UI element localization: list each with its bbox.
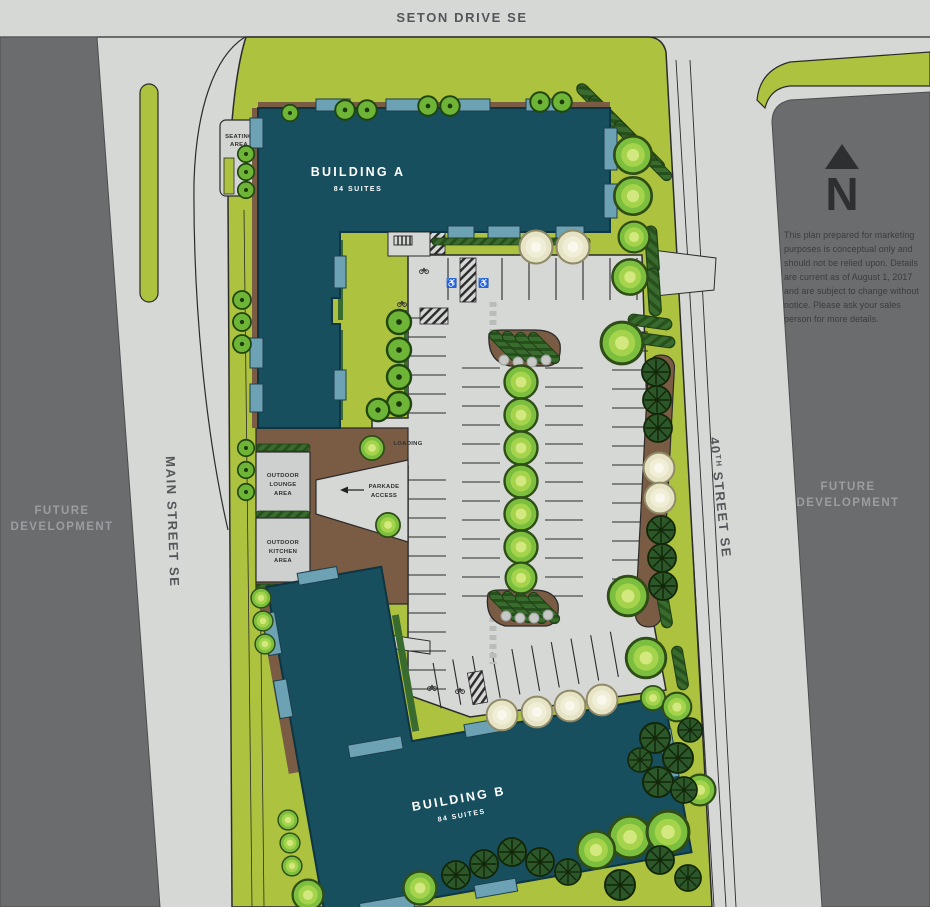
tree-icon <box>612 259 647 294</box>
shrub-icon <box>282 105 299 122</box>
tree-icon <box>293 880 324 907</box>
tree-icon <box>404 872 437 905</box>
tree-icon <box>626 638 666 678</box>
conifer-icon <box>646 846 674 874</box>
conifer-icon <box>605 870 635 900</box>
tree-icon <box>278 810 298 830</box>
building-a-suites: 84 SUITES <box>334 186 383 193</box>
seating-label-1: SEATING <box>225 134 253 140</box>
conifer-icon <box>644 414 672 442</box>
shrub-icon <box>233 335 251 353</box>
shrub-icon <box>418 96 438 116</box>
shrub-icon <box>233 291 251 309</box>
hedge-icon <box>256 511 310 518</box>
boulder-icon <box>501 611 511 621</box>
right-parcel-label-1: FUTURE <box>820 481 875 493</box>
accessible-parking-icon: ♿ <box>446 277 457 288</box>
east-driveway <box>652 250 716 296</box>
boulder-icon <box>543 610 553 620</box>
loading-label: LOADING <box>393 441 422 447</box>
disclaimer-line: This plan prepared for marketing <box>784 230 914 240</box>
building-a-name: BUILDING A <box>311 165 405 179</box>
lounge-label-2: LOUNGE <box>270 482 297 488</box>
disclaimer-line: person for more details. <box>784 314 879 324</box>
shrub-icon <box>387 392 411 416</box>
conifer-icon <box>555 859 581 885</box>
shrub-icon <box>233 313 251 331</box>
conifer-icon <box>643 386 671 414</box>
shrub-icon <box>387 338 411 362</box>
north-letter: N <box>825 168 858 220</box>
ornamental-tree-icon <box>555 691 586 722</box>
shrub-icon <box>238 146 255 163</box>
conifer-icon <box>675 865 701 891</box>
accessible-parking-icon: ♿ <box>478 277 489 288</box>
conifer-icon <box>643 767 673 797</box>
seating-planter <box>224 158 234 194</box>
shrub-icon <box>238 440 255 457</box>
left-parcel-label-1: FUTURE <box>34 505 89 517</box>
hedge-icon <box>256 444 310 451</box>
tree-icon <box>282 856 302 876</box>
tree-icon <box>360 436 384 460</box>
kitchen-label-3: AREA <box>274 558 292 564</box>
conifer-icon <box>663 743 693 773</box>
disclaimer-line: are current as of August 1, 2017 <box>784 272 912 282</box>
boulder-icon <box>529 613 539 623</box>
conifer-icon <box>647 516 675 544</box>
tree-icon <box>253 611 273 631</box>
street-median <box>140 84 158 302</box>
shrub-icon <box>387 365 411 389</box>
tree-icon <box>608 576 648 616</box>
conifer-icon <box>649 572 677 600</box>
lounge-label-1: OUTDOOR <box>267 473 300 479</box>
disclaimer-line: purposes is conceptual only and <box>784 244 913 254</box>
site-plan-svg: FUTURE DEVELOPMENT ♿ ♿ <box>0 0 930 907</box>
tree-icon <box>641 686 665 710</box>
lounge-label-3: AREA <box>274 491 292 497</box>
tree-icon <box>255 634 275 654</box>
shrub-icon <box>367 399 390 422</box>
tree-icon <box>505 366 538 399</box>
tree-icon <box>619 222 650 253</box>
site-plan: FUTURE DEVELOPMENT ♿ ♿ <box>0 0 930 907</box>
ornamental-tree-icon <box>587 685 618 716</box>
shrub-icon <box>238 182 255 199</box>
shrub-icon <box>357 100 377 120</box>
tree-icon <box>506 563 537 594</box>
boulder-icon <box>541 355 551 365</box>
conifer-icon <box>628 748 652 772</box>
right-parcel-label-2: DEVELOPMENT <box>797 497 900 509</box>
ornamental-tree-icon <box>522 697 553 728</box>
crosswalk-hatch-west <box>420 308 448 324</box>
conifer-icon <box>648 544 676 572</box>
tree-icon <box>663 693 692 722</box>
conifer-icon <box>678 718 702 742</box>
tree-icon <box>376 513 400 537</box>
conifer-icon <box>526 848 554 876</box>
tree-icon <box>280 833 300 853</box>
conifer-icon <box>642 358 670 386</box>
ornamental-tree-icon <box>645 483 676 514</box>
tree-icon <box>577 831 614 868</box>
disclaimer: This plan prepared for marketing purpose… <box>784 230 919 324</box>
shrub-icon <box>552 92 572 112</box>
disclaimer-line: should not be relied upon. Details <box>784 258 918 268</box>
tree-icon <box>505 399 538 432</box>
tree-icon <box>614 177 651 214</box>
kitchen-label-2: KITCHEN <box>269 549 297 555</box>
conifer-icon <box>498 838 526 866</box>
disclaimer-line: notice. Please ask your sales <box>784 300 901 310</box>
ornamental-tree-icon <box>557 231 590 264</box>
boulder-icon <box>527 357 537 367</box>
parkade-access-label-2: ACCESS <box>371 493 397 499</box>
shrub-icon <box>238 164 255 181</box>
tree-icon <box>647 811 689 853</box>
ornamental-tree-icon <box>520 231 553 264</box>
left-parcel-label-2: DEVELOPMENT <box>11 521 114 533</box>
tree-icon <box>614 136 651 173</box>
disclaimer-line: and are subject to change without <box>784 286 919 296</box>
shrub-icon <box>238 484 255 501</box>
tree-icon <box>601 322 643 364</box>
stairs-icon <box>394 236 412 245</box>
kitchen-label-1: OUTDOOR <box>267 540 300 546</box>
shrub-icon <box>335 100 355 120</box>
tree-icon <box>505 465 538 498</box>
ornamental-tree-icon <box>487 700 518 731</box>
boulder-icon <box>515 613 525 623</box>
conifer-icon <box>442 861 470 889</box>
tree-icon <box>505 498 538 531</box>
tree-icon <box>505 531 538 564</box>
parkade-access-label-1: PARKADE <box>369 484 400 490</box>
shrub-icon <box>238 462 255 479</box>
conifer-icon <box>671 777 697 803</box>
shrub-icon <box>387 310 411 334</box>
shrub-icon <box>530 92 550 112</box>
crosswalk-hatch-north <box>460 258 476 302</box>
tree-icon <box>505 432 538 465</box>
seton-drive-label: SETON DRIVE SE <box>396 10 527 25</box>
boulder-icon <box>499 355 509 365</box>
conifer-icon <box>470 850 498 878</box>
shrub-icon <box>440 96 460 116</box>
ornamental-tree-icon <box>644 453 675 484</box>
tree-icon <box>251 588 271 608</box>
